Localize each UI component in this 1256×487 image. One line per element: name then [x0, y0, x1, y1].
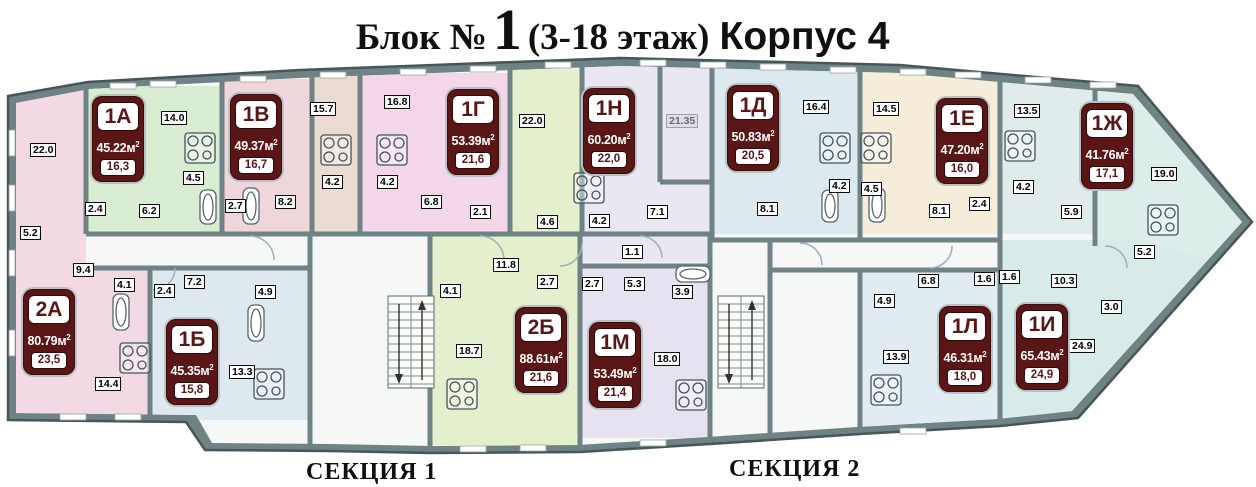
apartment-total-area: 46.31м2 [941, 350, 989, 365]
room-area-label: 4.5 [861, 182, 882, 196]
room-area-label: 2.1 [470, 205, 491, 219]
room-area-label: 21.35 [666, 114, 698, 128]
room-area-label: 14.0 [161, 111, 187, 125]
section-1-label: СЕКЦИЯ 1 [306, 459, 437, 486]
apartment-living-area: 20,5 [735, 148, 771, 165]
room-area-label: 4.9 [874, 294, 895, 308]
apartment-living-area: 21,6 [455, 152, 491, 169]
apartment-living-area: 22,0 [591, 151, 627, 168]
room-area-label: 4.2 [1013, 180, 1034, 194]
apartment-living-area: 18,0 [947, 369, 983, 386]
apartment-number: 1А [97, 102, 139, 131]
room-area-label: 8.1 [757, 202, 778, 216]
room-area-label: 16.4 [803, 100, 829, 114]
apartment-total-area: 60.20м2 [585, 132, 633, 147]
apartment-number: 1И [1021, 310, 1063, 339]
room-area-label: 22.0 [519, 114, 545, 128]
room-area-label: 15.7 [310, 102, 336, 116]
room-area-label: 8.2 [275, 195, 296, 209]
room-area-label: 5.3 [624, 277, 645, 291]
apartment-badge-1Д: 1Д50.83м220,5 [727, 85, 779, 171]
apartment-badge-1Б: 1Б45.35м215,8 [166, 319, 218, 405]
floor-plan-page: 1А45.22м216,31В49.37м216,71Г53.39м221,61… [0, 0, 1256, 487]
room-area-label: 22.0 [30, 143, 56, 157]
title-block-number: 1 [493, 0, 522, 63]
room-area-label: 1.6 [974, 272, 995, 286]
staircase-section-2 [718, 296, 764, 388]
room-area-label: 9.4 [73, 263, 94, 277]
room-area-label: 6.8 [918, 274, 939, 288]
apartment-living-area: 16,0 [944, 161, 980, 178]
apartment-total-area: 65.43м2 [1018, 348, 1066, 363]
room-area-label: 4.2 [829, 179, 850, 193]
room-area-label: 3.9 [672, 285, 693, 299]
apartment-number: 1Ж [1086, 109, 1128, 138]
apartment-number: 1Н [588, 94, 630, 123]
apartment-total-area: 41.76м2 [1083, 147, 1131, 162]
page-title: Блок № 1 (3-18 этаж) Корпус 4 [356, 0, 890, 63]
apartment-living-area: 21,6 [523, 370, 559, 387]
apartment-total-area: 45.22м2 [94, 140, 142, 155]
room-area-label: 18.0 [654, 352, 680, 366]
room-area-label: 5.2 [20, 226, 41, 240]
building-floor-plan [0, 0, 1256, 487]
apartment-badge-1Ж: 1Ж41.76м217,1 [1081, 103, 1133, 189]
apartment-total-area: 45.35м2 [168, 363, 216, 378]
room-area-label: 18.7 [456, 344, 482, 358]
room-area-label: 7.2 [184, 275, 205, 289]
room-area-label: 4.1 [114, 278, 135, 292]
room-area-label: 10.3 [1051, 274, 1077, 288]
room-area-label: 13.3 [229, 365, 255, 379]
room-area-label: 5.9 [1061, 205, 1082, 219]
apartment-living-area: 21,4 [597, 385, 633, 402]
room-area-label: 13.5 [1014, 104, 1040, 118]
apartment-total-area: 49.37м2 [232, 138, 280, 153]
apartment-badge-1А: 1А45.22м216,3 [92, 96, 144, 182]
apartment-number: 1Е [941, 104, 983, 133]
apartment-number: 1В [235, 100, 277, 129]
room-area-label: 4.1 [440, 284, 461, 298]
room-area-label: 24.9 [1069, 339, 1095, 353]
apartment-badge-1М: 1М53.49м221,4 [589, 322, 641, 408]
room-area-label: 2.4 [85, 202, 106, 216]
apartment-living-area: 16,3 [100, 159, 136, 176]
room-area-label: 2.7 [225, 199, 246, 213]
apartment-badge-1И: 1И65.43м224,9 [1016, 304, 1068, 390]
room-area-label: 4.9 [255, 285, 276, 299]
apartment-living-area: 16,7 [238, 157, 274, 174]
title-korpus: Корпус 4 [720, 15, 890, 59]
room-area-label: 6.8 [421, 195, 442, 209]
apartment-badge-2Б: 2Б88.61м221,6 [515, 307, 567, 393]
apartment-living-area: 23,5 [31, 352, 67, 369]
apartment-total-area: 50.83м2 [729, 129, 777, 144]
apartment-total-area: 88.61м2 [517, 351, 565, 366]
apartment-living-area: 17,1 [1089, 166, 1125, 183]
room-area-label: 19.0 [1151, 167, 1177, 181]
apartment-number: 2А [28, 295, 70, 324]
room-area-label: 13.9 [883, 350, 909, 364]
room-area-label: 4.6 [537, 215, 558, 229]
apartment-living-area: 24,9 [1024, 367, 1060, 384]
room-area-label: 2.4 [154, 284, 175, 298]
apartment-badge-1Л: 1Л46.31м218,0 [939, 306, 991, 392]
title-floor-range: (3-18 этаж) [528, 16, 710, 59]
room-area-label: 16.8 [384, 95, 410, 109]
room-area-label: 7.1 [647, 205, 668, 219]
staircase-section-1 [388, 296, 434, 388]
room-area-label: 1.6 [999, 270, 1020, 284]
section-2-label: СЕКЦИЯ 2 [729, 456, 860, 483]
room-area-label: 4.2 [589, 214, 610, 228]
apartment-number: 1М [594, 328, 636, 357]
room-area-label: 4.2 [377, 175, 398, 189]
apartment-total-area: 47.20м2 [938, 142, 986, 157]
room-area-label: 4.2 [322, 175, 343, 189]
apartment-total-area: 53.49м2 [591, 366, 639, 381]
title-block-prefix: Блок № [356, 16, 487, 59]
apartment-total-area: 53.39м2 [449, 133, 497, 148]
apartment-living-area: 15,8 [174, 382, 210, 399]
apartment-badge-1Е: 1Е47.20м216,0 [936, 98, 988, 184]
room-area-label: 14.5 [873, 102, 899, 116]
apartment-number: 2Б [520, 313, 562, 342]
apartment-number: 1Д [732, 91, 774, 120]
room-area-label: 2.4 [969, 197, 990, 211]
apartment-number: 1Г [452, 95, 494, 124]
apartment-badge-1Г: 1Г53.39м221,6 [447, 89, 499, 175]
room-area-label: 1.1 [622, 245, 643, 259]
room-area-label: 3.0 [1101, 300, 1122, 314]
room-area-label: 8.1 [929, 204, 950, 218]
apartment-badge-1Н: 1Н60.20м222,0 [583, 88, 635, 174]
room-area-label: 6.2 [139, 204, 160, 218]
room-area-label: 14.4 [95, 377, 121, 391]
room-area-label: 2.7 [537, 275, 558, 289]
apartment-total-area: 80.79м2 [25, 333, 73, 348]
apartment-badge-2А: 2А80.79м223,5 [23, 289, 75, 375]
room-area-label: 11.8 [493, 258, 519, 272]
apartment-badge-1В: 1В49.37м216,7 [230, 94, 282, 180]
room-area-label: 2.7 [582, 277, 603, 291]
room-area-label: 5.2 [1134, 245, 1155, 259]
apartment-number: 1Л [944, 312, 986, 341]
apartment-number: 1Б [171, 325, 213, 354]
room-area-label: 4.5 [183, 171, 204, 185]
